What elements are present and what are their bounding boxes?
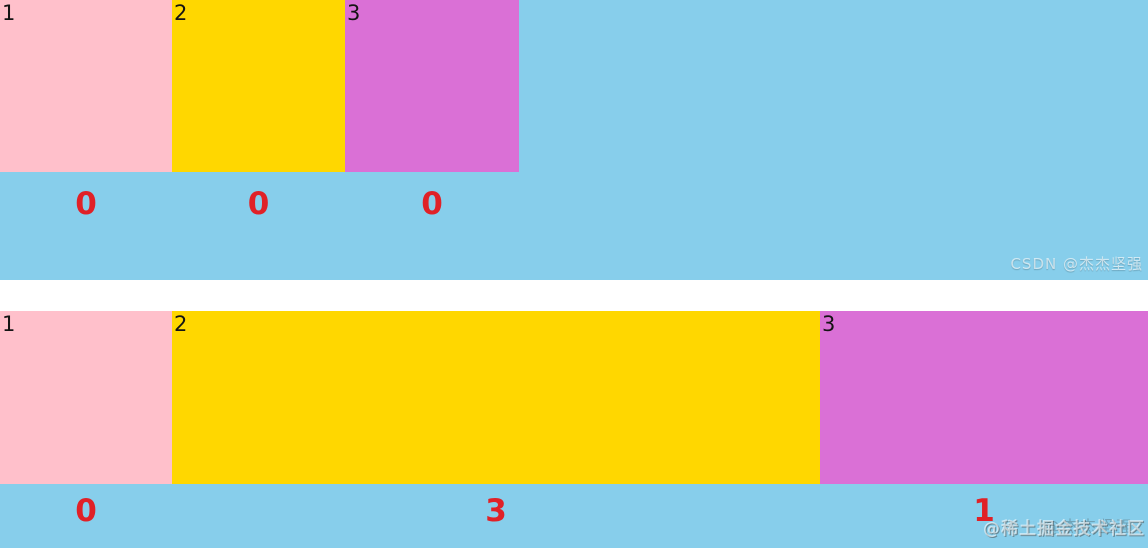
flex-item-2-gold: 2 <box>172 0 345 172</box>
flex-item-label: 2 <box>174 312 187 336</box>
flex-item-label: 1 <box>2 312 15 336</box>
grow-value: 0 <box>345 189 519 220</box>
grow-value: 0 <box>0 189 172 220</box>
flex-container-bottom: 1 2 3 0 3 1 @杰杰坚强 @稀土掘金技术社区 <box>0 311 1148 548</box>
grow-value: 0 <box>0 496 172 527</box>
grow-value: 3 <box>172 496 820 527</box>
flex-items-row-bottom: 1 2 3 <box>0 311 1148 484</box>
flex-item-label: 3 <box>822 312 835 336</box>
grow-values-row-top: 0 0 0 <box>0 172 1148 220</box>
flex-item-2-gold: 2 <box>172 311 820 484</box>
flex-items-row-top: 1 2 3 <box>0 0 1148 172</box>
grow-value: 0 <box>172 189 345 220</box>
flex-grow-demo-page: 1 2 3 0 0 0 CSDN @杰杰坚强 1 2 3 <box>0 0 1148 548</box>
flex-item-label: 2 <box>174 1 187 25</box>
flex-item-label: 3 <box>347 1 360 25</box>
flex-item-3-orchid: 3 <box>345 0 519 172</box>
section-gap <box>0 280 1148 311</box>
flex-item-1-pink: 1 <box>0 0 172 172</box>
csdn-watermark: CSDN @杰杰坚强 <box>1010 253 1143 274</box>
flex-container-top: 1 2 3 0 0 0 CSDN @杰杰坚强 <box>0 0 1148 280</box>
flex-item-3-orchid: 3 <box>820 311 1148 484</box>
grow-value: 1 <box>820 496 1148 527</box>
flex-item-1-pink: 1 <box>0 311 172 484</box>
grow-values-row-bottom: 0 3 1 <box>0 484 1148 527</box>
flex-item-label: 1 <box>2 1 15 25</box>
